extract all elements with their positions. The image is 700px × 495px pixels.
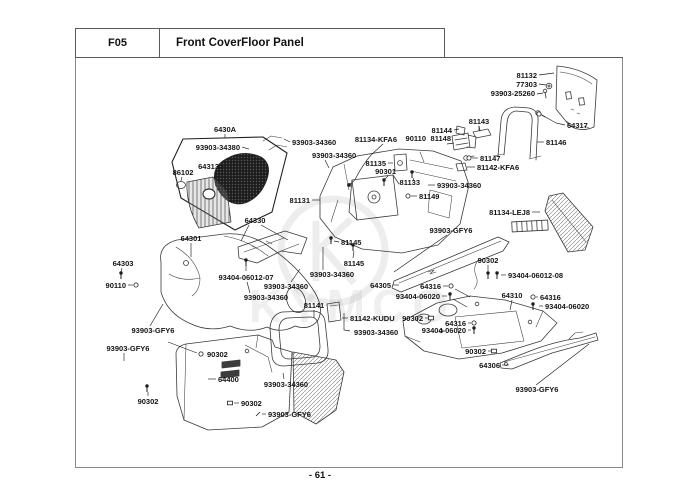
part-label: 90110 [106,281,126,290]
part-label: 90302 [478,256,499,265]
part-label: 64305 [370,281,391,290]
part-label-group: 81143 [469,117,489,131]
leader-line [542,115,565,125]
part-label: 81145 [341,238,361,247]
part-label: 81147 [480,154,500,163]
part-81142-kfa6-clip [456,163,467,171]
part-label: 93404-06012-08 [508,271,563,280]
part-label: 64317 [567,121,588,130]
part-label: 93903-GFY6 [430,226,473,235]
leader-line [334,241,339,242]
part-label: 81131 [290,196,310,205]
leader-line [168,342,197,353]
clip-icon [228,401,233,405]
leader-line [242,147,249,149]
part-label-group: 81142-KFA6 [467,163,519,172]
part-label: 93404-06020 [396,292,440,301]
part-label: 81133 [400,178,420,187]
part-label: 81148 [431,134,451,143]
part-label-group: 93404-06012-07 [218,258,273,282]
part-label-group: 81134-LEJ8 [489,208,540,217]
part-label: 90301 [375,167,396,176]
part-label: 64301 [181,234,202,243]
part-label: 93903-34360 [264,282,308,291]
part-label-group: 64400 [208,375,239,384]
part-label: 93903-GFY6 [268,410,311,419]
part-label: 93903-GFY6 [132,326,175,335]
part-label: 64310 [502,291,523,300]
part-label: 93903-34360 [292,138,336,147]
part-label-group: 93903-GFY6 [516,344,589,394]
leader-line [325,160,329,168]
part-label: 93903-25260 [491,89,535,98]
exploded-parts-diagram: KYMCO [0,0,700,495]
part-label: 81142-KFA6 [477,163,519,172]
leader-line [385,176,388,179]
part-label-group: 64301 [181,234,202,257]
part-label: 81146 [546,138,566,147]
part-label: 6430A [214,125,237,134]
part-label: 81134-LEJ8 [489,208,530,217]
part-label-group: 81134-KFA6 [355,135,397,155]
part-label: 64303 [113,259,134,268]
part-label-group: 81146 [537,138,566,147]
part-label-group: 64303 [113,259,134,279]
part-label: 81134-KFA6 [355,135,397,144]
part-label: 81149 [419,192,439,201]
nut-icon [199,352,203,356]
part-label-group: 90302 [478,256,499,279]
part-label: 64400 [218,375,239,384]
part-label-group: 81133 [400,170,420,187]
leader-line [371,144,383,155]
part-label: 93903-GFY6 [107,344,150,353]
part-label: 81141 [304,301,324,310]
part-label: 64316 [540,293,561,302]
leader-line [241,225,249,241]
part-label-group: 93404-06012-08 [495,271,563,280]
clip-icon [492,349,497,353]
part-81143-clip [473,126,491,138]
part-81134-lej8-heat-shield [512,193,593,252]
part-label-group: 90110 [106,281,139,290]
part-label: 90302 [402,314,423,323]
part-label-group: 93404-06020 [531,302,589,311]
part-label-group: 93903-GFY6 [132,304,175,335]
part-label-group: 90110 [406,134,426,143]
part-label-group: 64310 [502,291,523,310]
part-label: 93903-34360 [244,293,288,302]
part-label-group: 81148 [431,134,454,144]
leader-line [539,84,546,85]
part-label: 64306 [479,361,500,370]
part-label: 93903-34360 [354,328,398,337]
part-81146-molding [493,107,541,160]
part-label: 93404-06020 [545,302,589,311]
part-label: 93903-GFY6 [516,385,559,394]
part-label-group: 93404-06020 [422,326,476,335]
part-label-group: 93903-GFY6 [394,226,472,272]
part-label: 81143 [469,117,489,126]
part-label-group: 6430A [214,125,237,138]
part-label: 90302 [465,347,486,356]
part-label-group: 93903-25260 [491,89,543,98]
nut-icon [531,295,535,299]
part-64400-lower-cover [176,335,344,430]
part-81148-lock [452,133,470,150]
leader-line [455,289,470,297]
nut-icon [472,321,476,325]
leader-line [150,304,163,326]
nut-icon [467,156,471,160]
part-label-group: 81142-KUDU [342,314,395,323]
nut-icon [134,283,138,287]
leader-line [181,177,182,181]
part-label: 81142-KUDU [350,314,395,323]
part-label-group: 64317 [537,112,588,130]
part-label-group: 93903-GFY6 [107,344,150,361]
leader-line [537,93,543,94]
part-label-group: 90302 [228,399,262,408]
part-label: 93903-34380 [196,143,240,152]
part-label: 90110 [406,134,426,143]
part-label-group: 81147 [467,154,501,163]
part-label: 93903-34360 [312,151,356,160]
leader-line [283,373,284,379]
part-label-group: 77303 [516,80,546,89]
part-label-group: 93903-GFY6 [256,410,311,419]
part-label: 93903-34360 [310,270,354,279]
clip-icon [429,316,434,320]
part-label: 86102 [173,168,194,177]
tick-icon [256,412,260,416]
part-label-group: 93903-34360 [428,181,481,190]
part-label: 93903-34360 [437,181,481,190]
part-label-group: 81145 [344,243,364,268]
part-label-group: 81132 [517,71,554,80]
part-64330-floorboard [238,231,307,263]
part-label-group: 90302 [138,384,159,406]
nut-icon [406,194,410,198]
part-label: 93404-06020 [422,326,466,335]
catalog-page: F05 Front CoverFloor Panel KYMCO [0,0,700,495]
part-label-group: 81149 [406,192,440,201]
part-label: 64330 [245,216,266,225]
part-label: 90302 [207,350,228,359]
part-label: 64316 [420,282,441,291]
part-label: 93903-34360 [264,380,308,389]
part-label-group: 93903-34360 [284,138,336,147]
leader-line [353,251,354,258]
part-label-group: 64316 [531,293,561,302]
page-number: - 61 - [270,470,370,481]
part-label: 81132 [517,71,537,80]
part-label: 90302 [241,399,262,408]
part-label: 93404-06012-07 [218,273,273,282]
part-label-group: 93903-34380 [196,143,249,152]
part-64306-bottom-strip [500,332,598,369]
nut-icon [449,284,453,288]
nut-icon [537,112,541,116]
leader-line [539,73,554,75]
part-77303-grommet [546,83,552,89]
part-label: 90302 [138,397,159,406]
leader-line [284,139,290,142]
part-label-group: 93903-34360 [312,151,356,168]
part-label: 64313 [198,162,219,171]
part-label: 77303 [516,80,537,89]
part-label: 81145 [344,259,364,268]
